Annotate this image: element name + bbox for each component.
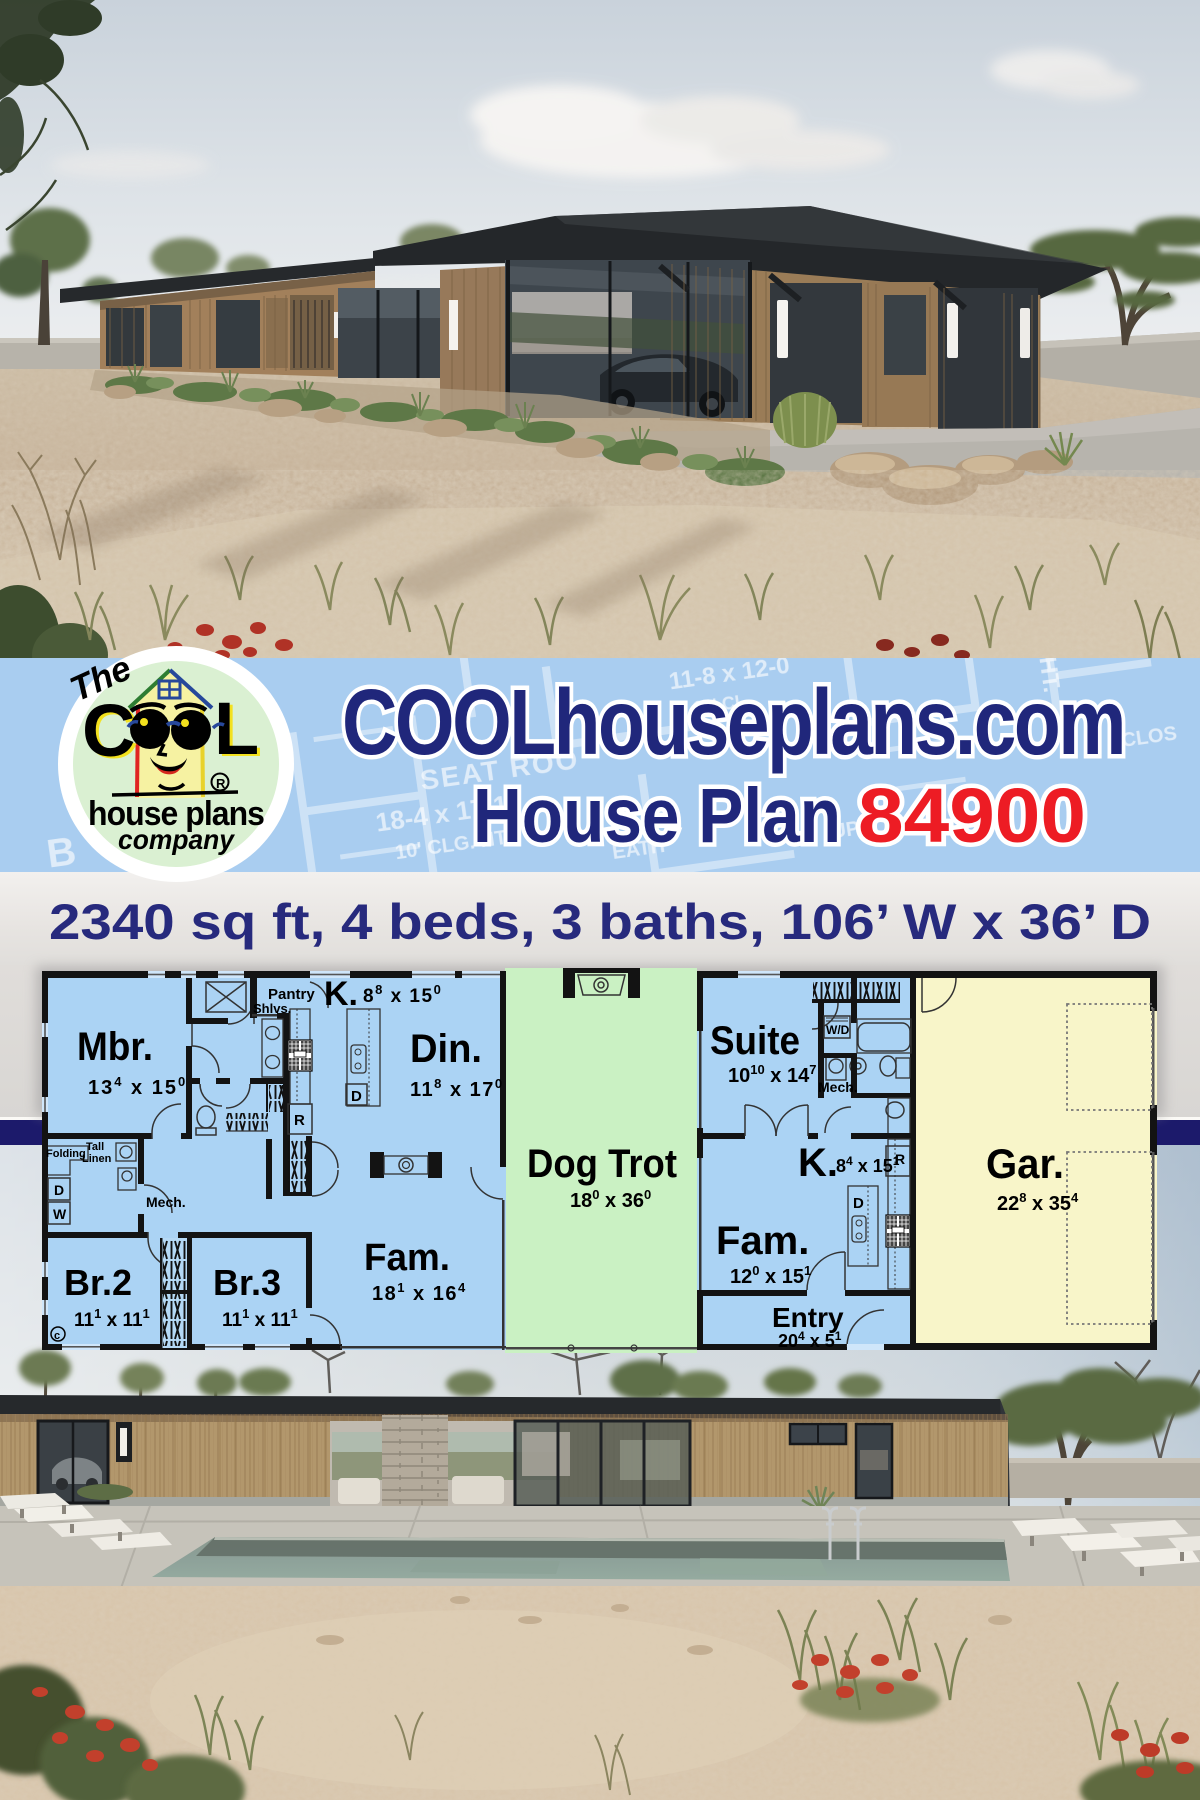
svg-text:House Plan: House Plan (473, 773, 841, 859)
svg-text:R: R (294, 1112, 305, 1129)
svg-text:Br.3: Br.3 (213, 1262, 281, 1303)
svg-text:Folding: Folding (46, 1148, 86, 1160)
svg-text:204 x 51: 204 x 51 (778, 1329, 842, 1351)
svg-text:181 x 164: 181 x 164 (372, 1280, 467, 1305)
svg-text:L: L (214, 687, 259, 770)
svg-text:Linen: Linen (82, 1153, 112, 1165)
svg-text:Tall: Tall (86, 1141, 104, 1153)
svg-text:COOLhouseplans.com: COOLhouseplans.com (342, 670, 1124, 774)
svg-text:2340 sq ft, 4 beds, 3 baths, 1: 2340 sq ft, 4 beds, 3 baths, 106’ W x 36… (49, 894, 1151, 950)
svg-text:Gar.: Gar. (986, 1140, 1064, 1187)
svg-text:88 x 150: 88 x 150 (363, 982, 442, 1007)
svg-text:D: D (853, 1195, 864, 1212)
svg-text:134 x 150: 134 x 150 (88, 1074, 187, 1099)
svg-text:R: R (216, 776, 226, 791)
svg-text:W/D: W/D (826, 1023, 850, 1037)
svg-text:D: D (54, 1182, 64, 1198)
svg-text:Br.2: Br.2 (64, 1262, 132, 1303)
svg-text:Dog Trot: Dog Trot (527, 1142, 677, 1186)
svg-text:Entry: Entry (772, 1302, 844, 1333)
svg-text:Fam.: Fam. (716, 1219, 809, 1263)
svg-text:1010 x 147: 1010 x 147 (728, 1062, 816, 1087)
svg-text:180 x 360: 180 x 360 (570, 1187, 651, 1212)
svg-text:Din.: Din. (410, 1027, 482, 1071)
svg-text:K.: K. (324, 975, 358, 1013)
svg-text:C: C (82, 689, 135, 772)
svg-text:B: B (44, 829, 79, 877)
svg-text:K.: K. (798, 1141, 838, 1185)
svg-text:Fam.: Fam. (364, 1237, 450, 1279)
svg-text:c: c (54, 1330, 60, 1342)
svg-text:84900: 84900 (858, 773, 1086, 859)
svg-text:Mech.: Mech. (818, 1079, 858, 1095)
svg-text:111 x 111: 111 x 111 (222, 1306, 298, 1331)
svg-text:D: D (351, 1088, 362, 1105)
svg-text:84 x 151: 84 x 151 (836, 1154, 900, 1176)
svg-text:company: company (118, 824, 235, 855)
svg-text:118 x 170: 118 x 170 (410, 1076, 504, 1101)
svg-text:Shlvs.: Shlvs. (253, 1001, 291, 1016)
svg-text:W: W (53, 1206, 67, 1222)
svg-text:Mech.: Mech. (146, 1194, 186, 1210)
svg-text:Suite: Suite (710, 1019, 800, 1063)
svg-text:111 x 111: 111 x 111 (74, 1306, 150, 1331)
svg-text:120 x 151: 120 x 151 (730, 1263, 811, 1288)
svg-text:Mbr.: Mbr. (77, 1025, 153, 1069)
svg-text:228 x 354: 228 x 354 (997, 1190, 1079, 1215)
